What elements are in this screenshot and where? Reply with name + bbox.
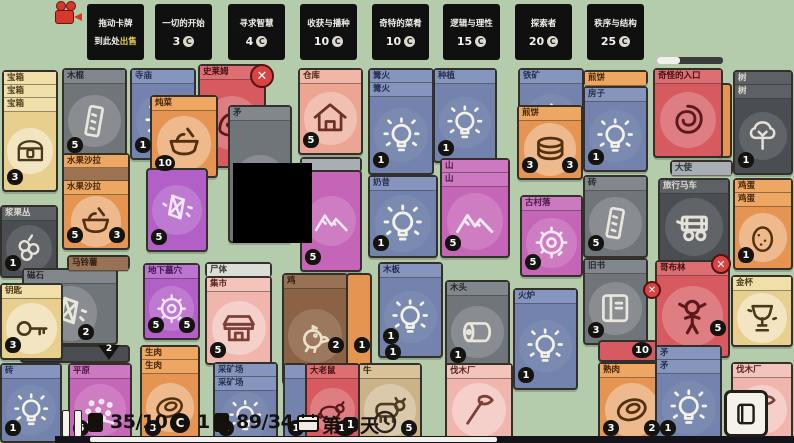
day-counter: 第 1 天 bbox=[322, 411, 379, 438]
count-badge: 2 bbox=[328, 337, 344, 353]
card-title: 地下墓穴 bbox=[145, 265, 198, 279]
sell-zone-line2: 到此处出售 bbox=[94, 35, 137, 47]
count-badge: 2 bbox=[644, 420, 660, 436]
card-emissary-bar[interactable]: 大使 bbox=[670, 160, 733, 175]
count-badge: 3 bbox=[5, 337, 21, 353]
quest-banner-3: 奇特的菜肴 10C bbox=[372, 4, 429, 60]
card-title: 奇怪的入口 bbox=[655, 70, 721, 84]
quest-cost: 10C bbox=[386, 35, 415, 48]
cart-icon bbox=[665, 198, 723, 256]
quest-title: 逻辑与理性 bbox=[450, 17, 493, 29]
count-badge: 5 bbox=[588, 235, 604, 251]
chest-icon bbox=[7, 128, 52, 173]
card-title: 火炉 bbox=[515, 290, 576, 304]
mountain-icon bbox=[306, 196, 356, 246]
quest-title: 奇特的菜肴 bbox=[379, 17, 422, 29]
card-milkshake-idea[interactable]: 奶昔1 bbox=[368, 175, 438, 258]
card-planting-idea[interactable]: 种植1 bbox=[433, 68, 497, 163]
card-title: 伐木厂 bbox=[447, 365, 511, 379]
quest-cost: 20C bbox=[529, 35, 558, 48]
bulb-icon bbox=[519, 320, 571, 372]
video-camera-icon bbox=[55, 1, 85, 27]
card-title: 房子 bbox=[585, 88, 646, 102]
card-catacombs[interactable]: 地下墓穴55 bbox=[143, 263, 200, 340]
quest-cost: 4C bbox=[246, 35, 268, 48]
quest-banner-4: 逻辑与理性 15C bbox=[443, 4, 500, 60]
card-title: 种植 bbox=[435, 70, 495, 84]
card-mountain[interactable]: 山山5 bbox=[440, 158, 510, 258]
card-egg[interactable]: 鸡蛋鸡蛋1 bbox=[733, 178, 793, 270]
count-badge: 1 bbox=[588, 149, 604, 165]
card-face bbox=[447, 379, 511, 441]
card-title: 煎饼 bbox=[585, 72, 646, 86]
food-icon bbox=[214, 413, 229, 432]
card-title: 钥匙 bbox=[2, 285, 61, 299]
card-title: 煎饼 bbox=[519, 107, 581, 121]
quest-cost: 25C bbox=[601, 35, 630, 48]
card-brick-idea[interactable]: 砖1 bbox=[0, 363, 62, 443]
coin-icon: C bbox=[256, 36, 267, 47]
card-house-idea[interactable]: 房子1 bbox=[583, 86, 648, 172]
game-screen: 拖动卡牌 到此处出售 一切的开始 3C 寻求智慧 4C 收获与播种 10C 奇特… bbox=[0, 0, 794, 443]
count-badge: 2 bbox=[78, 324, 94, 340]
card-title: 马铃薯 bbox=[69, 257, 128, 271]
coin-icon: C bbox=[404, 36, 415, 47]
card-mystery-card[interactable]: 5 bbox=[146, 168, 208, 252]
card-title: 旧书 bbox=[585, 260, 646, 274]
count-badge: 3 bbox=[109, 227, 125, 243]
card-title: 树 bbox=[735, 85, 791, 99]
card-face bbox=[655, 84, 721, 156]
count-badge: 5 bbox=[401, 420, 417, 436]
card-campfire-idea[interactable]: 篝火篝火1 bbox=[368, 68, 434, 175]
quest-cost: 15C bbox=[457, 35, 486, 48]
card-stack-title: 宝箱 bbox=[4, 72, 56, 85]
calendar-icon bbox=[296, 412, 320, 434]
card-old-book[interactable]: 旧书3 bbox=[583, 258, 648, 345]
card-lumber-camp-1[interactable]: 伐木厂 bbox=[445, 363, 513, 443]
card-title: 砖 bbox=[2, 365, 60, 379]
card-face bbox=[657, 276, 728, 356]
card-title: 木头 bbox=[447, 282, 508, 296]
card-potato-bar[interactable]: 马铃薯 bbox=[67, 255, 130, 270]
quest-cost: 3C bbox=[173, 35, 195, 48]
card-treasure-chest[interactable]: 宝箱宝箱宝箱3 bbox=[2, 70, 58, 192]
card-plank-idea[interactable]: 木板11 bbox=[378, 262, 443, 358]
day-number-badge: 1 bbox=[343, 417, 358, 432]
card-title: 矛 bbox=[657, 360, 720, 374]
close-icon[interactable]: ✕ bbox=[711, 254, 731, 274]
sell-zone-line1: 拖动卡牌 bbox=[98, 17, 132, 29]
cardopedia-button[interactable] bbox=[724, 390, 768, 437]
coin-icon: C bbox=[475, 36, 486, 47]
coin-icon: C bbox=[547, 36, 558, 47]
card-title: 铁矿 bbox=[520, 70, 582, 84]
card-title: 伐木厂 bbox=[733, 364, 791, 378]
swirl-icon bbox=[660, 92, 716, 148]
card-tree[interactable]: 树树1 bbox=[733, 70, 793, 175]
count-badge: 3 bbox=[562, 157, 578, 173]
bird-icon bbox=[288, 309, 341, 362]
count-badge: 1 bbox=[5, 420, 21, 436]
count-badge: 5 bbox=[445, 235, 461, 251]
quest-title: 收获与播种 bbox=[307, 17, 350, 29]
quest-title: 探索者 bbox=[531, 17, 557, 29]
count-badge: 3 bbox=[522, 157, 538, 173]
count-badge: 5 bbox=[525, 254, 541, 270]
card-title: 磁石 bbox=[24, 270, 116, 284]
coin-icon: C bbox=[183, 36, 194, 47]
count-badge: 5 bbox=[148, 317, 164, 333]
card-title bbox=[285, 365, 305, 379]
coin-icon: C bbox=[619, 36, 630, 47]
count-badge: 5 bbox=[67, 137, 83, 153]
count-badge: 1 bbox=[738, 247, 754, 263]
quest-progress-bar bbox=[657, 57, 723, 64]
card-title: 生肉 bbox=[142, 360, 198, 374]
card-title: 篝火 bbox=[370, 83, 432, 97]
book-icon bbox=[733, 400, 759, 428]
card-face bbox=[733, 291, 791, 345]
person-icon bbox=[662, 286, 722, 346]
cards-counter: 35/10 bbox=[110, 411, 167, 433]
card-brick[interactable]: 砖5 bbox=[583, 175, 648, 258]
card-title: 砖 bbox=[585, 177, 646, 191]
card-title: 鸡 bbox=[284, 275, 346, 289]
day-clock-icon bbox=[372, 409, 398, 435]
count-badge: 3 bbox=[603, 420, 619, 436]
card-warehouse[interactable]: 仓库5 bbox=[298, 68, 363, 155]
card-golden-goblet[interactable]: 金杯 bbox=[731, 275, 793, 347]
count-badge: 1 bbox=[383, 328, 399, 344]
card-title: 矛 bbox=[230, 107, 290, 121]
cup-icon bbox=[737, 293, 787, 343]
card-travelling-cart[interactable]: 旅行马车 bbox=[658, 178, 730, 262]
card-stove-idea[interactable]: 火炉1 bbox=[513, 288, 578, 390]
count-badge: 1 bbox=[660, 420, 676, 436]
card-stack-title: 采矿场 bbox=[215, 364, 276, 377]
card-title: 木棍 bbox=[64, 70, 125, 84]
pause-button[interactable] bbox=[62, 410, 85, 437]
count-badge: 1 bbox=[373, 152, 389, 168]
sell-zone[interactable]: 拖动卡牌 到此处出售 bbox=[87, 4, 144, 60]
close-icon[interactable]: ✕ bbox=[250, 64, 274, 88]
card-title: 大使 bbox=[672, 162, 731, 176]
quest-banner-0: 一切的开始 3C bbox=[155, 4, 212, 60]
count-badge: 1 bbox=[450, 347, 466, 363]
close-icon[interactable]: ✕ bbox=[643, 281, 661, 299]
coin-icon: C bbox=[332, 36, 343, 47]
card-title: 金杯 bbox=[733, 277, 791, 291]
card-spear-idea[interactable]: 矛矛1 bbox=[655, 345, 722, 443]
card-title: 集市 bbox=[207, 278, 270, 292]
card-title: 炖菜 bbox=[152, 97, 216, 111]
card-title: 寺庙 bbox=[132, 70, 194, 84]
cards-icon bbox=[88, 413, 103, 432]
card-market[interactable]: 集市5 bbox=[205, 276, 272, 365]
coins-counter: 1 bbox=[197, 411, 210, 433]
quest-banner-1: 寻求智慧 4C bbox=[228, 4, 285, 60]
card-title: 仓库 bbox=[300, 70, 361, 84]
card-strange-portal[interactable]: 奇怪的入口 bbox=[653, 68, 723, 158]
card-title: 平原 bbox=[70, 365, 130, 379]
card-stack-title: 矛 bbox=[657, 347, 720, 360]
card-title: 木板 bbox=[380, 264, 441, 278]
count-badge: 5 bbox=[179, 317, 195, 333]
count-badge: 1 bbox=[135, 137, 151, 153]
quest-banner-2: 收获与播种 10C bbox=[300, 4, 357, 60]
card-stick[interactable]: 木棍5 bbox=[62, 68, 127, 160]
coin-icon: C bbox=[170, 413, 190, 433]
card-goblin[interactable]: 哥布林5 bbox=[655, 260, 730, 358]
quest-banner-6: 秩序与结构 25C bbox=[587, 4, 644, 60]
card-stack-title: 水果沙拉 bbox=[64, 155, 128, 168]
card-face bbox=[660, 194, 728, 260]
day-prefix: 第 bbox=[322, 411, 341, 438]
count-badge: 1 bbox=[738, 152, 754, 168]
count-badge: 1 bbox=[373, 235, 389, 251]
count-badge: 5 bbox=[305, 249, 321, 265]
card-ancient-village[interactable]: 古村落5 bbox=[520, 195, 583, 277]
card-stack-title: 篝火 bbox=[370, 70, 432, 83]
card-fruit-salad[interactable]: 水果沙拉水果沙拉53 bbox=[62, 153, 130, 250]
count-badge: 1 bbox=[438, 140, 454, 156]
card-stack-title: 山 bbox=[442, 160, 508, 173]
count-badge: 10 bbox=[155, 155, 175, 171]
card-title: 大老鼠 bbox=[307, 365, 358, 379]
card-corpse-bar[interactable]: 尸体 bbox=[205, 262, 272, 277]
card-stack-title bbox=[64, 168, 128, 181]
count-badge: 1 bbox=[518, 367, 534, 383]
card-wood[interactable]: 木头1 bbox=[445, 280, 510, 370]
quest-title: 一切的开始 bbox=[162, 17, 205, 29]
card-pancake-bar[interactable]: 煎饼 bbox=[583, 70, 648, 85]
card-title: 宝箱 bbox=[4, 98, 56, 112]
count-badge: 1 bbox=[385, 344, 401, 360]
card-key[interactable]: 钥匙3 bbox=[0, 283, 63, 360]
card-stack-title: 鸡蛋 bbox=[735, 180, 791, 193]
quest-banner-5: 探索者 20C bbox=[515, 4, 572, 60]
count-badge: 10 bbox=[632, 342, 652, 358]
food-counter: 89/34 bbox=[236, 411, 293, 433]
count-badge: 3 bbox=[588, 322, 604, 338]
card-title: 采矿场 bbox=[215, 377, 276, 391]
card-title: 旅行马车 bbox=[660, 180, 728, 194]
count-badge: 3 bbox=[7, 169, 23, 185]
card-title: 古村落 bbox=[522, 197, 581, 211]
card-card-sliver-red[interactable]: 10 bbox=[598, 340, 658, 362]
card-title: 鸡蛋 bbox=[735, 193, 791, 207]
card-title: 水果沙拉 bbox=[64, 181, 128, 195]
stack-more-badge: 2 bbox=[98, 345, 120, 363]
quest-title: 秩序与结构 bbox=[594, 17, 637, 29]
count-badge: 5 bbox=[710, 320, 726, 336]
count-badge: 5 bbox=[210, 342, 226, 358]
card-title: 浆果丛 bbox=[2, 207, 56, 221]
count-badge: 5 bbox=[151, 229, 167, 245]
card-title: 奶昔 bbox=[370, 177, 436, 191]
count-badge: 5 bbox=[303, 132, 319, 148]
count-badge: 5 bbox=[67, 227, 83, 243]
card-black-overlay bbox=[233, 163, 312, 243]
card-stack-title: 树 bbox=[735, 72, 791, 85]
card-pancake[interactable]: 煎饼33 bbox=[517, 105, 583, 180]
count-badge: 1 bbox=[354, 337, 370, 353]
quest-cost: 10C bbox=[314, 35, 343, 48]
card-title: 熟肉 bbox=[600, 364, 663, 378]
card-stack-title: 宝箱 bbox=[4, 85, 56, 98]
quest-title: 寻求智慧 bbox=[239, 17, 273, 29]
card-title: 山 bbox=[442, 173, 508, 187]
card-face bbox=[233, 163, 312, 243]
axe-icon bbox=[452, 383, 507, 438]
day-timer-bar bbox=[90, 437, 497, 442]
card-stew[interactable]: 炖菜10 bbox=[150, 95, 218, 178]
count-badge: 1 bbox=[5, 255, 21, 271]
card-stack-title: 生肉 bbox=[142, 347, 198, 360]
crystal-icon bbox=[152, 185, 202, 235]
card-title: 牛 bbox=[360, 365, 420, 379]
